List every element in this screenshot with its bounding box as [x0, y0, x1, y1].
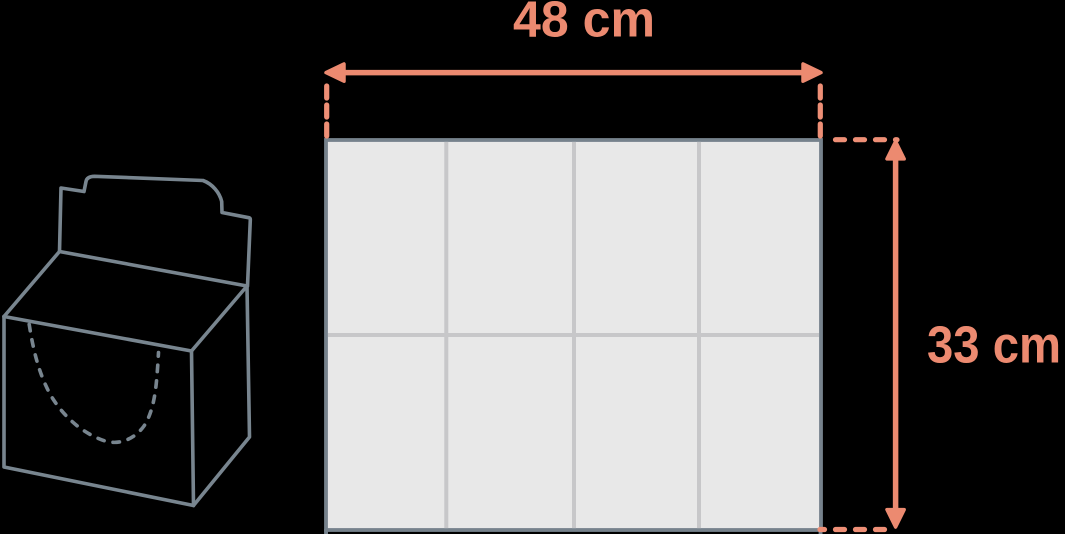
svg-text:48 cm: 48 cm: [513, 0, 655, 48]
svg-text:33 cm: 33 cm: [927, 317, 1061, 375]
